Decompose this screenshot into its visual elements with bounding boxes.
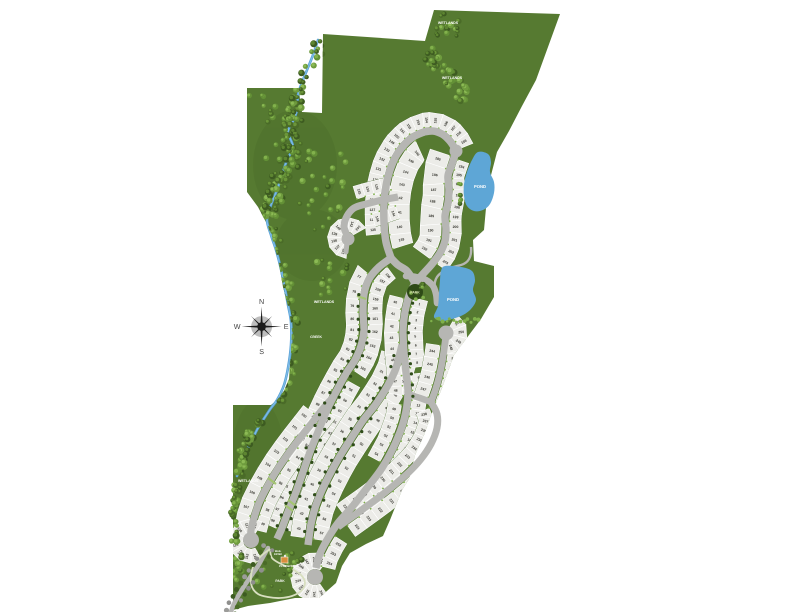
svg-text:171: 171 [445, 382, 452, 387]
svg-text:KIOSK: KIOSK [274, 553, 282, 556]
svg-text:41: 41 [391, 312, 396, 317]
svg-text:216: 216 [438, 443, 445, 449]
svg-text:12: 12 [416, 403, 420, 408]
svg-text:187: 187 [431, 188, 437, 192]
svg-text:PARK: PARK [410, 291, 420, 295]
svg-text:127: 127 [370, 208, 376, 212]
svg-text:POND: POND [447, 297, 459, 302]
svg-text:43: 43 [389, 336, 393, 340]
svg-text:49: 49 [392, 407, 396, 412]
svg-text:220: 220 [399, 489, 406, 496]
svg-text:195: 195 [456, 173, 462, 178]
svg-text:169: 169 [449, 365, 455, 370]
svg-text:199: 199 [453, 215, 459, 219]
svg-text:250: 250 [458, 330, 464, 334]
svg-text:219: 219 [410, 479, 417, 486]
svg-text:173: 173 [440, 398, 447, 404]
svg-text:POND: POND [474, 184, 486, 189]
svg-text:WETLANDS: WETLANDS [238, 479, 259, 483]
svg-text:200: 200 [453, 225, 459, 229]
svg-text:S: S [259, 347, 264, 356]
svg-text:4: 4 [414, 326, 416, 330]
svg-text:E: E [284, 322, 289, 331]
svg-text:172: 172 [443, 390, 450, 396]
svg-text:44: 44 [390, 347, 394, 351]
svg-text:CREEK: CREEK [310, 335, 322, 339]
svg-text:6: 6 [415, 343, 417, 347]
svg-text:189: 189 [428, 214, 434, 218]
svg-text:WETLANDS: WETLANDS [314, 300, 335, 304]
svg-text:218: 218 [421, 469, 428, 476]
svg-text:42: 42 [390, 324, 394, 328]
svg-text:48: 48 [394, 389, 398, 393]
svg-text:80: 80 [350, 317, 354, 321]
svg-text:217: 217 [430, 457, 437, 464]
svg-text:5: 5 [414, 334, 416, 338]
svg-text:PARK: PARK [275, 579, 285, 583]
svg-text:155: 155 [433, 117, 438, 123]
svg-text:170: 170 [447, 373, 454, 378]
svg-text:154: 154 [424, 117, 429, 123]
svg-text:7: 7 [415, 352, 417, 356]
svg-text:186: 186 [432, 173, 438, 178]
svg-text:W: W [234, 322, 241, 331]
svg-text:190: 190 [428, 229, 434, 233]
svg-text:161: 161 [372, 317, 378, 321]
svg-text:125: 125 [370, 228, 376, 233]
svg-text:81: 81 [350, 328, 354, 332]
svg-text:WETLANDS: WETLANDS [438, 21, 459, 25]
svg-text:241: 241 [312, 591, 316, 597]
svg-text:160: 160 [372, 306, 378, 310]
svg-text:N: N [259, 297, 264, 306]
svg-text:PLAYGROUND: PLAYGROUND [279, 564, 299, 568]
svg-text:162: 162 [372, 330, 378, 334]
svg-text:WETLANDS: WETLANDS [442, 76, 463, 80]
svg-text:79: 79 [350, 304, 354, 308]
svg-text:140: 140 [397, 225, 403, 229]
svg-text:215: 215 [443, 427, 449, 432]
